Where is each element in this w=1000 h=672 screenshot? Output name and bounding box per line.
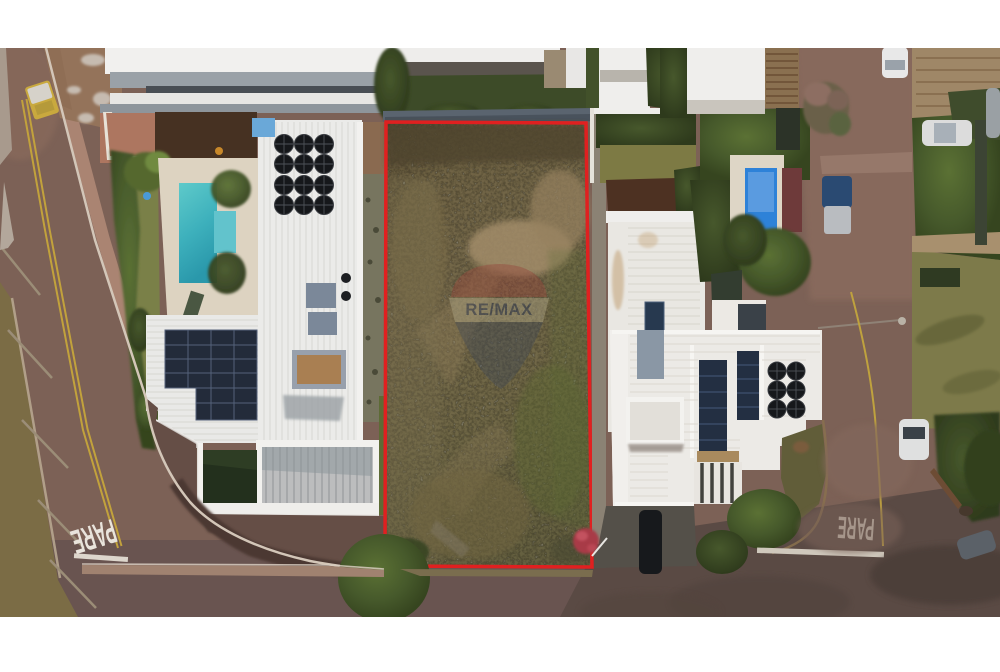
- svg-text:RE/MAX: RE/MAX: [465, 301, 532, 319]
